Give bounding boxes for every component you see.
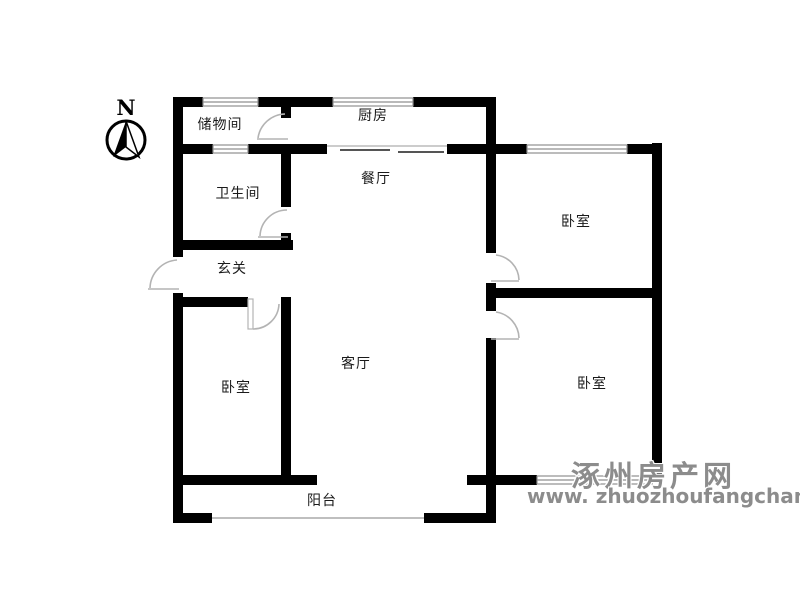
room-label-dining: 餐厅 bbox=[361, 168, 391, 188]
door-arc bbox=[260, 210, 287, 236]
door-arc bbox=[496, 312, 519, 338]
room-label-bedroom-ne: 卧室 bbox=[561, 211, 591, 231]
wall-segment bbox=[281, 144, 291, 207]
wall-segment bbox=[173, 240, 293, 250]
wall-segment bbox=[281, 297, 291, 485]
wall-segment bbox=[486, 288, 662, 298]
wall-segment bbox=[173, 293, 183, 523]
room-label-storage: 储物间 bbox=[198, 114, 243, 134]
wall-segment bbox=[413, 97, 496, 107]
room-label-bathroom: 卫生间 bbox=[216, 183, 261, 203]
floor-plan-drawing: N bbox=[0, 0, 800, 600]
door-arc bbox=[150, 260, 177, 288]
compass-n-label: N bbox=[116, 95, 135, 120]
door-arc bbox=[496, 255, 519, 280]
wall-segment bbox=[486, 97, 496, 253]
wall-segment bbox=[424, 513, 496, 523]
compass: N bbox=[107, 95, 145, 159]
room-label-entry: 玄关 bbox=[217, 258, 247, 278]
room-label-bedroom-se: 卧室 bbox=[577, 373, 607, 393]
wall-segment bbox=[173, 97, 183, 257]
floor-plan-canvas: N 储物间 厨房 卫生间 餐厅 卧室 玄关 卧室 客厅 卧室 阳台 涿州房产网 … bbox=[0, 0, 800, 600]
door-arc bbox=[253, 304, 279, 329]
wall-segment bbox=[173, 475, 317, 485]
wall-segment bbox=[486, 338, 496, 523]
wall-segment bbox=[258, 97, 333, 107]
wall-segment bbox=[486, 283, 496, 311]
room-label-bedroom-w: 卧室 bbox=[221, 377, 251, 397]
door-arc bbox=[258, 114, 285, 138]
room-label-balcony: 阳台 bbox=[307, 490, 337, 510]
watermark-site-url: www. zhuozhoufangchan. com bbox=[527, 484, 800, 508]
wall-segment bbox=[173, 297, 248, 307]
door-panel bbox=[248, 299, 253, 329]
sliding-door bbox=[327, 146, 447, 152]
wall-segment bbox=[652, 143, 662, 483]
wall-segment bbox=[281, 233, 291, 250]
room-label-living: 客厅 bbox=[341, 353, 371, 373]
room-label-kitchen: 厨房 bbox=[358, 105, 388, 125]
